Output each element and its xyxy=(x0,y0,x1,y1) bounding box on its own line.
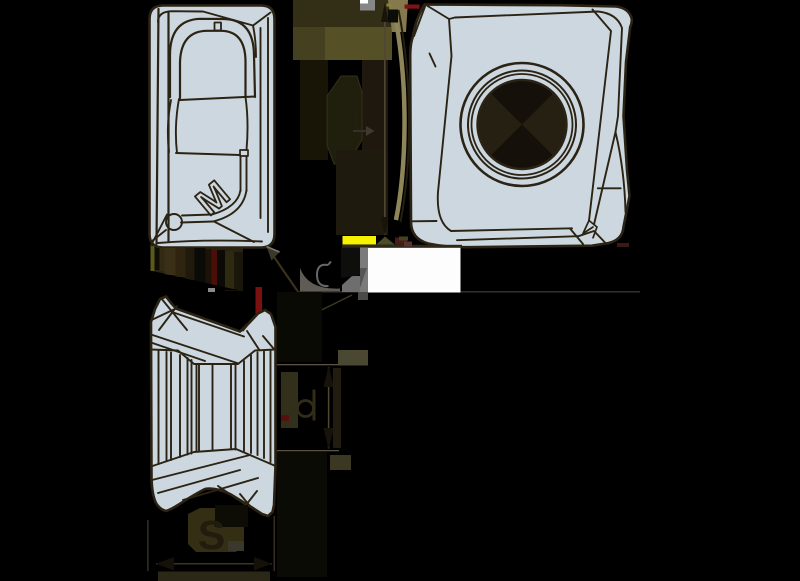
svg-text:S: S xyxy=(198,512,225,558)
